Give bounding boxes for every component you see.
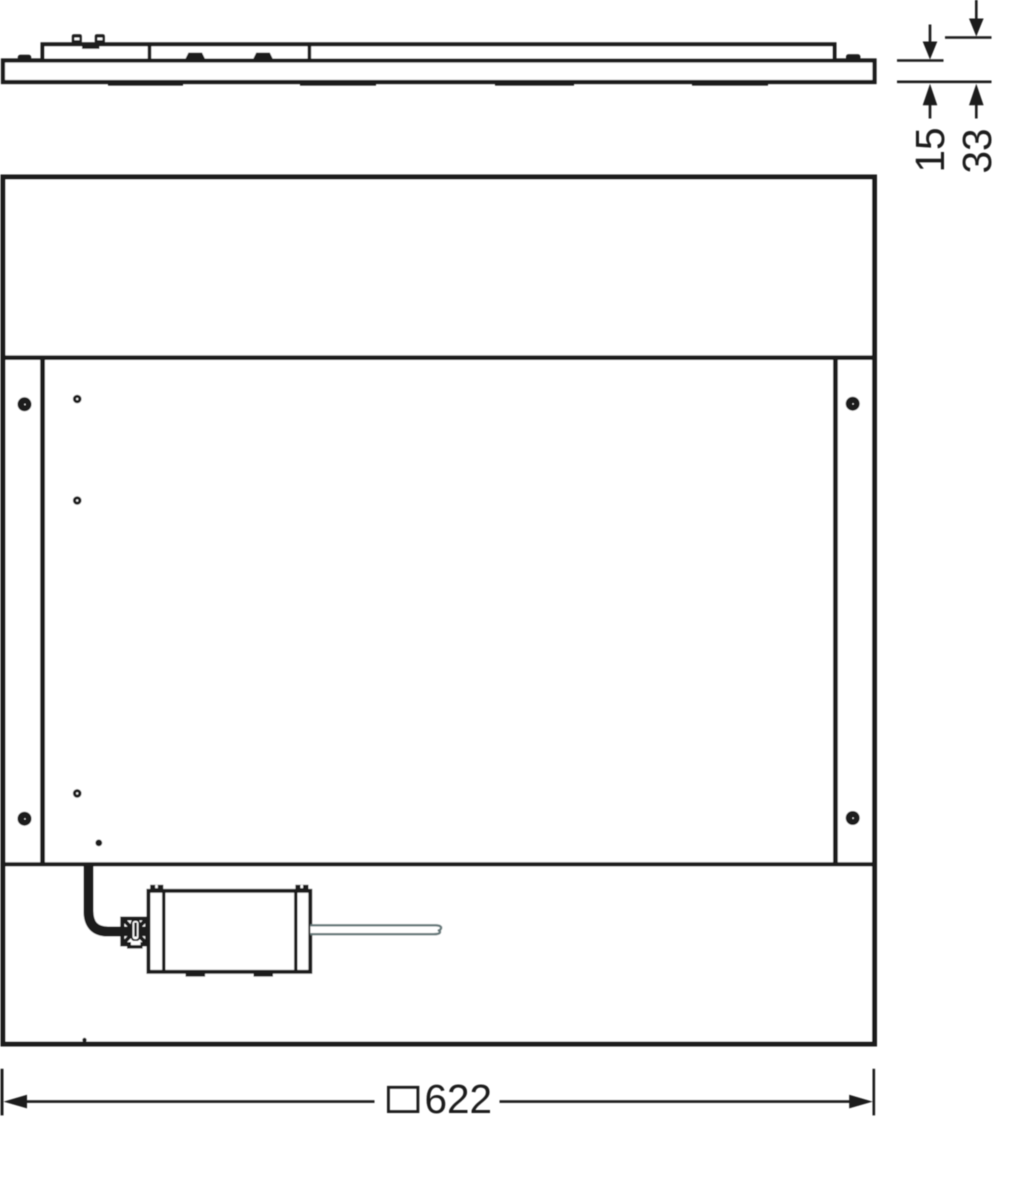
svg-text:15: 15: [907, 127, 953, 172]
svg-text:33: 33: [954, 128, 1000, 173]
svg-text:622: 622: [425, 1076, 493, 1122]
